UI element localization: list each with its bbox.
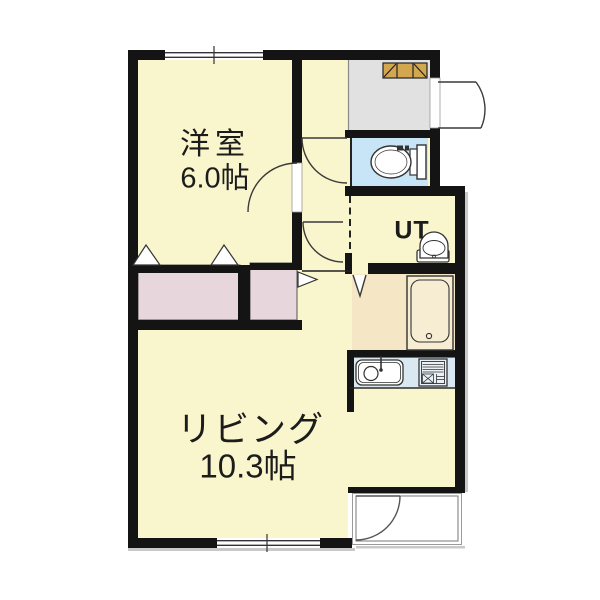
wall-dining-bottom xyxy=(348,487,465,493)
wall-closet-top-right xyxy=(250,263,302,270)
western-room-size-label: 6.0帖 xyxy=(180,165,249,194)
shoe-cabinet-icon xyxy=(383,63,427,78)
toilet-icon xyxy=(371,145,426,179)
shadow-bottom xyxy=(128,548,355,551)
floorplan-drawing xyxy=(0,0,600,600)
floorplan-canvas: 洋室 6.0帖 リビング 10.3帖 UT xyxy=(0,0,600,600)
wall-toilet-top xyxy=(345,130,430,138)
western-room-name-label: 洋室 xyxy=(180,130,250,160)
wall-bottom-left xyxy=(128,538,217,548)
shadow-terrace xyxy=(356,546,465,549)
wall-bath-top xyxy=(368,263,465,274)
wall-right-upper-a xyxy=(430,50,440,78)
outside-notch xyxy=(440,50,465,186)
wall-bottom-right xyxy=(320,538,352,548)
wall-kitchen-top xyxy=(347,350,465,357)
wall-left xyxy=(128,50,138,548)
closet-left-floor xyxy=(138,265,240,320)
wall-right-upper-b xyxy=(430,128,440,196)
living-room-name-label: リビング xyxy=(177,413,325,448)
wall-toilet-bottom xyxy=(345,186,465,196)
wall-kitchen-left-stub xyxy=(347,350,354,412)
living-room-size-label: 10.3帖 xyxy=(199,450,296,483)
ut-room-label: UT xyxy=(394,219,429,244)
closet-right-floor xyxy=(250,263,297,320)
wall-right-lower xyxy=(455,186,465,492)
kitchen-sink-icon xyxy=(356,356,403,385)
wall-closet-divider xyxy=(238,265,250,322)
wall-top-right xyxy=(263,50,440,60)
wall-closet-top-left xyxy=(136,265,240,273)
wall-closet-bottom xyxy=(128,320,302,330)
wall-western-right-lower xyxy=(292,212,302,267)
bathtub-icon xyxy=(407,276,453,350)
stove-icon xyxy=(419,359,447,386)
shadow-right xyxy=(465,192,468,492)
wall-western-right-upper xyxy=(292,50,302,163)
